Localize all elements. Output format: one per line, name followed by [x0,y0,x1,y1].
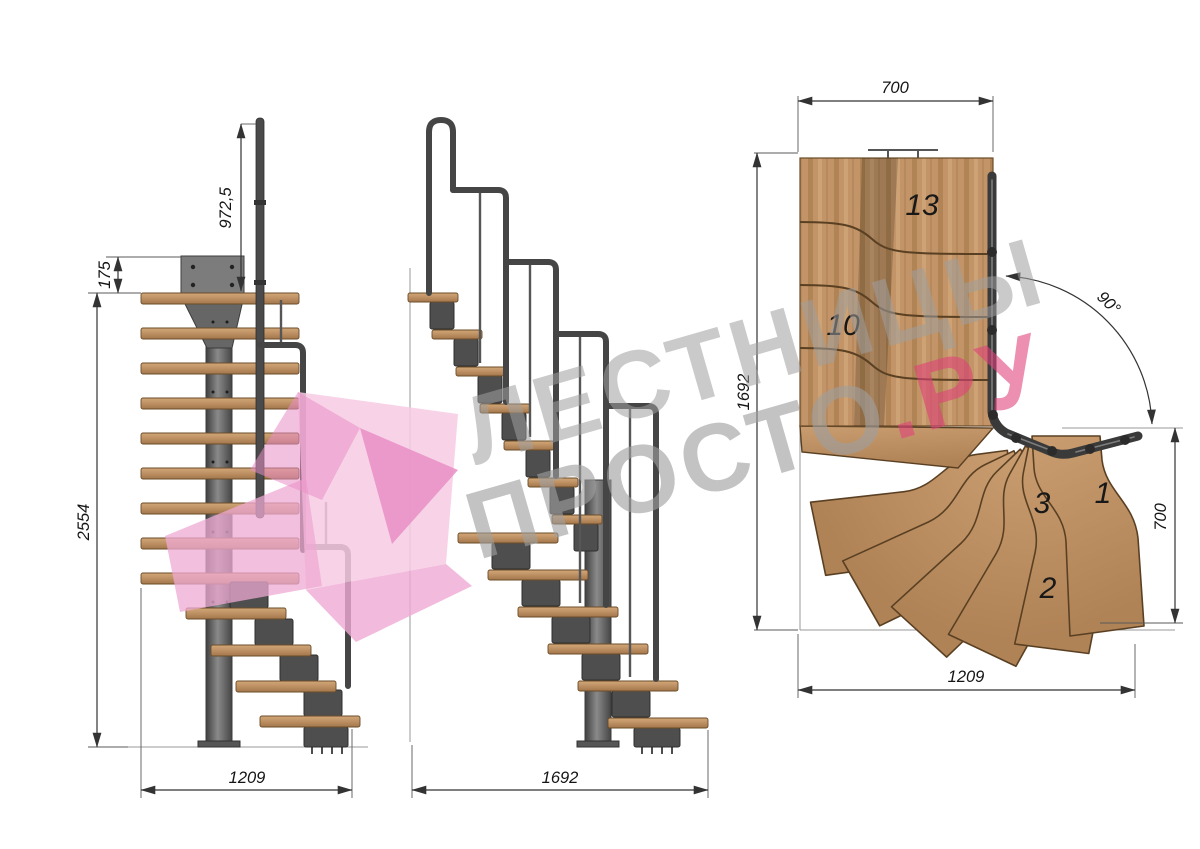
front-dim-total-height: 2554 [75,293,141,747]
plan-step-label-3: 3 [1034,487,1051,520]
plan-step-label-2: 2 [1039,572,1057,605]
front-dim-plate-offset: 175 [96,257,181,293]
svg-text:700: 700 [881,79,909,97]
plan-dim-top-width: 700 [798,79,993,152]
svg-text:1692: 1692 [542,769,579,787]
plan-wall-bracket [868,150,938,158]
svg-text:1209: 1209 [948,668,985,686]
front-base-flange [198,741,240,747]
plan-angle-label: 90° [1093,288,1124,319]
svg-text:700: 700 [1152,502,1170,530]
side-base-flange [577,741,619,747]
svg-text:2554: 2554 [75,504,93,542]
svg-text:175: 175 [96,260,114,288]
stair-drawing-sheet: 972,5 175 2554 1209 [0,0,1200,849]
front-rail-joint [254,200,266,205]
front-mount-plate [181,256,244,296]
front-rail-joint [254,280,266,285]
plan-step-label-13: 13 [905,189,939,222]
plan-step-label-1: 1 [1095,477,1112,510]
side-rail-hairpin [429,120,453,293]
side-anchor-bolts [642,747,672,754]
svg-text:1209: 1209 [229,769,266,787]
svg-text:972,5: 972,5 [217,187,235,229]
front-anchor-bolts [312,747,342,754]
drawing-canvas: 972,5 175 2554 1209 [0,0,1200,849]
